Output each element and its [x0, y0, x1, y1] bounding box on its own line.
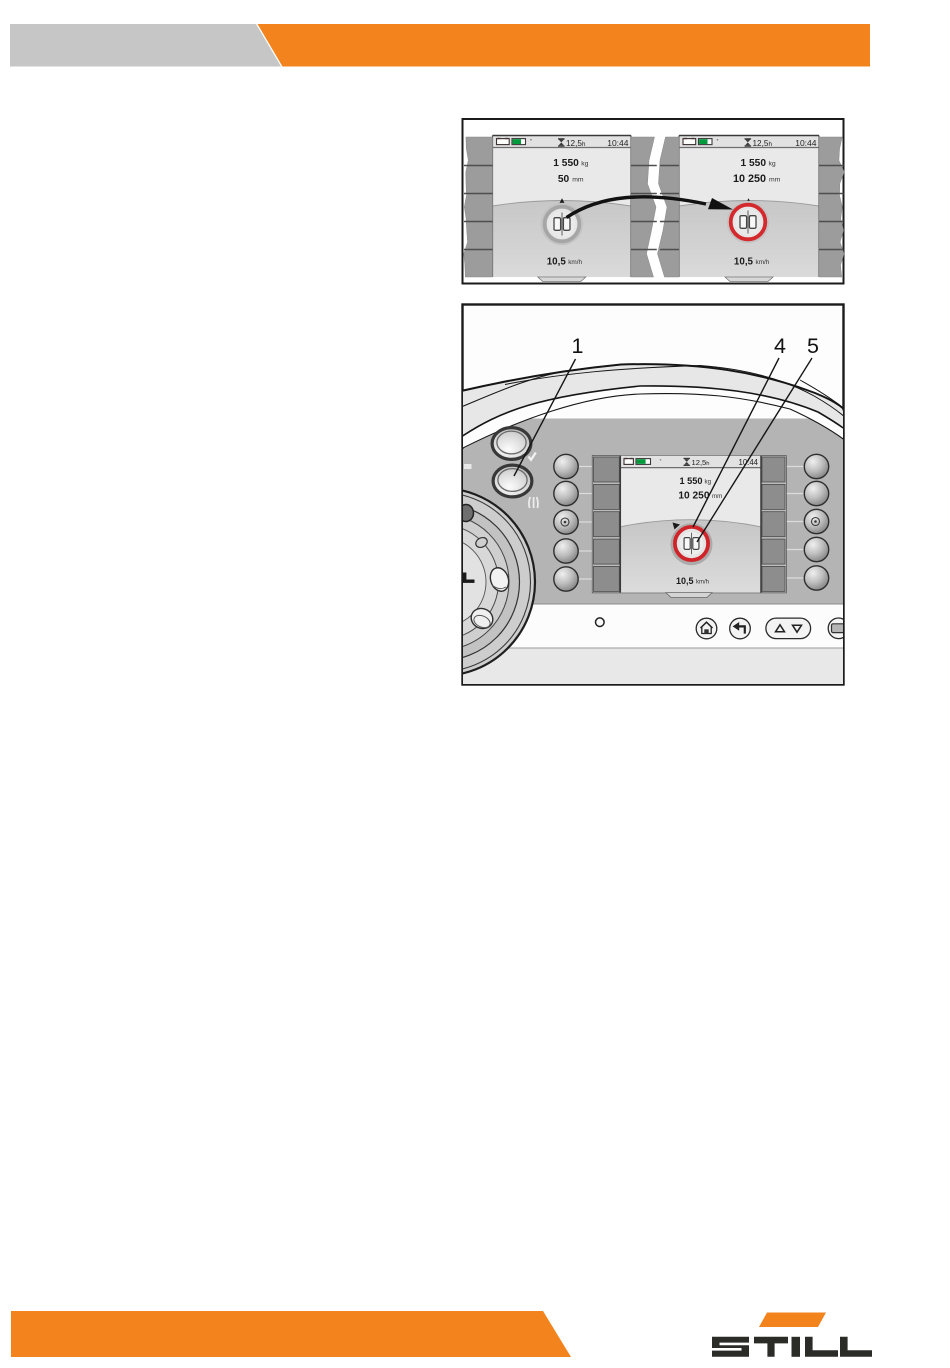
svg-text:km/h: km/h: [756, 259, 770, 266]
svg-text:1: 1: [572, 334, 584, 358]
svg-text:1 550: 1 550: [680, 476, 703, 486]
svg-text:4: 4: [774, 334, 786, 358]
svg-text:10 250: 10 250: [733, 173, 766, 185]
svg-text:mm: mm: [572, 177, 584, 184]
svg-text:km/h: km/h: [696, 580, 709, 586]
svg-text:10:44: 10:44: [607, 138, 629, 148]
svg-text:kg: kg: [769, 161, 776, 168]
svg-text:mm: mm: [712, 493, 722, 500]
svg-text:12,5h: 12,5h: [753, 139, 773, 148]
svg-text:10,5: 10,5: [547, 257, 567, 268]
svg-text:km/h: km/h: [568, 259, 582, 266]
svg-text:5: 5: [807, 334, 819, 358]
svg-text:kg: kg: [581, 161, 588, 168]
svg-text:kg: kg: [705, 479, 712, 486]
svg-text:12,5h: 12,5h: [566, 139, 586, 148]
svg-text:10,5: 10,5: [676, 576, 694, 586]
svg-text:1 550: 1 550: [741, 158, 767, 169]
svg-text:mm: mm: [769, 177, 781, 184]
svg-text:10,5: 10,5: [734, 257, 754, 268]
svg-text:10:44: 10:44: [795, 138, 817, 148]
svg-text:10 250: 10 250: [678, 491, 709, 502]
svg-text:1 550: 1 550: [553, 158, 579, 169]
svg-text:50: 50: [558, 174, 570, 185]
